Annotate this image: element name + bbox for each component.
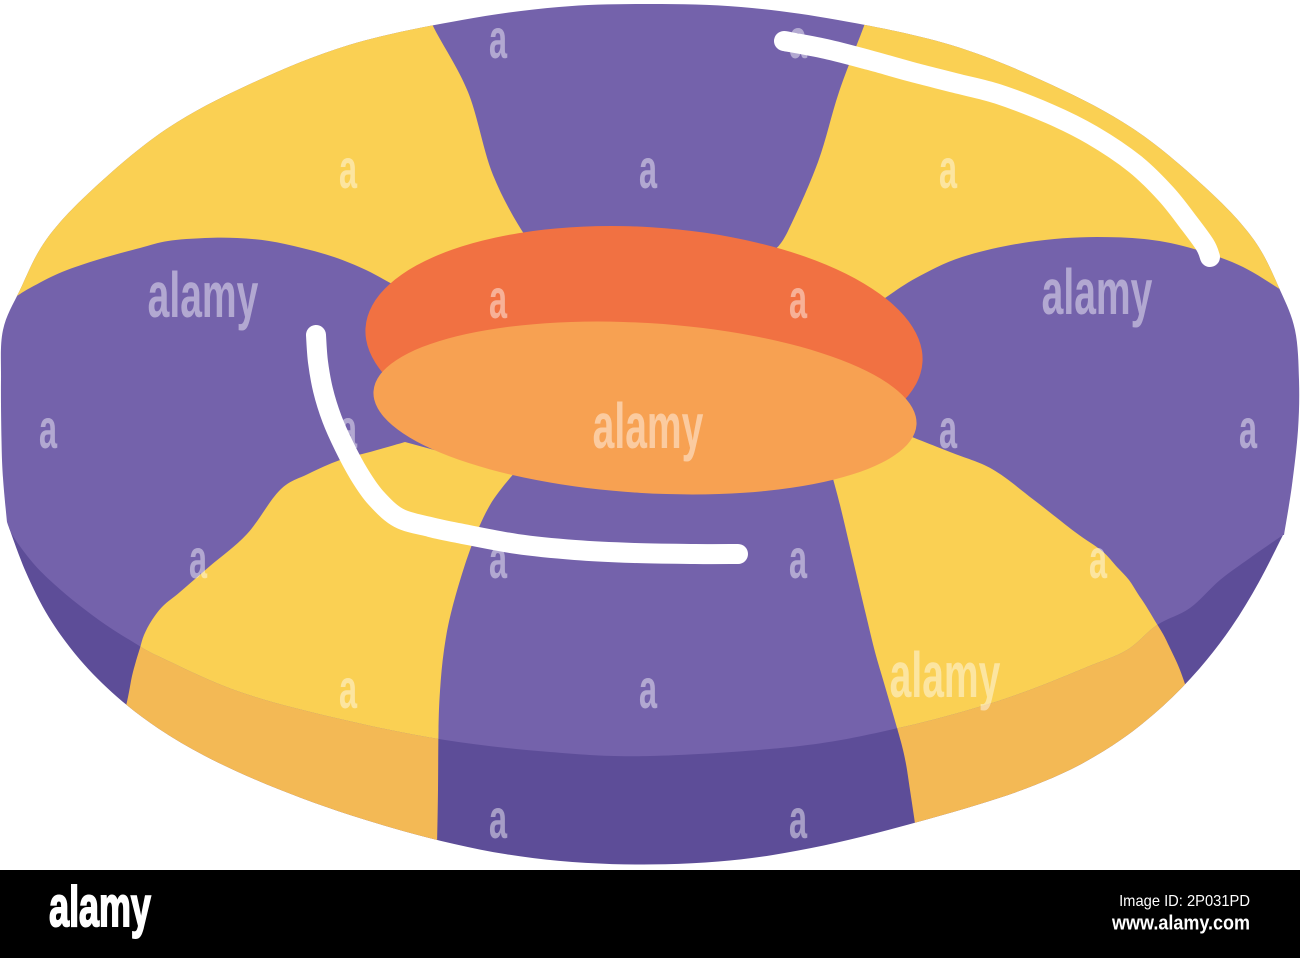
svg-text:alamy: alamy [1042,257,1153,328]
svg-text:alamy: alamy [148,260,259,331]
svg-text:a: a [789,8,807,70]
svg-text:www.alamy.com: www.alamy.com [1111,913,1250,935]
svg-text:a: a [789,788,807,850]
svg-text:a: a [39,398,57,460]
svg-text:a: a [489,528,507,590]
svg-text:a: a [489,788,507,850]
svg-text:a: a [639,658,657,720]
svg-text:Image ID: 2P031PD: Image ID: 2P031PD [1119,893,1250,910]
svg-text:alamy: alamy [49,876,151,939]
svg-text:a: a [639,138,657,200]
svg-text:alamy: alamy [593,391,704,462]
svg-text:a: a [939,398,957,460]
svg-text:a: a [339,138,357,200]
svg-text:a: a [1239,398,1257,460]
svg-text:alamy: alamy [890,640,1001,711]
svg-text:a: a [489,268,507,330]
svg-text:a: a [339,398,357,460]
svg-text:a: a [489,8,507,70]
svg-text:a: a [939,138,957,200]
svg-text:a: a [789,268,807,330]
svg-text:a: a [789,528,807,590]
svg-text:a: a [189,528,207,590]
svg-text:a: a [1089,528,1107,590]
svg-text:a: a [339,658,357,720]
